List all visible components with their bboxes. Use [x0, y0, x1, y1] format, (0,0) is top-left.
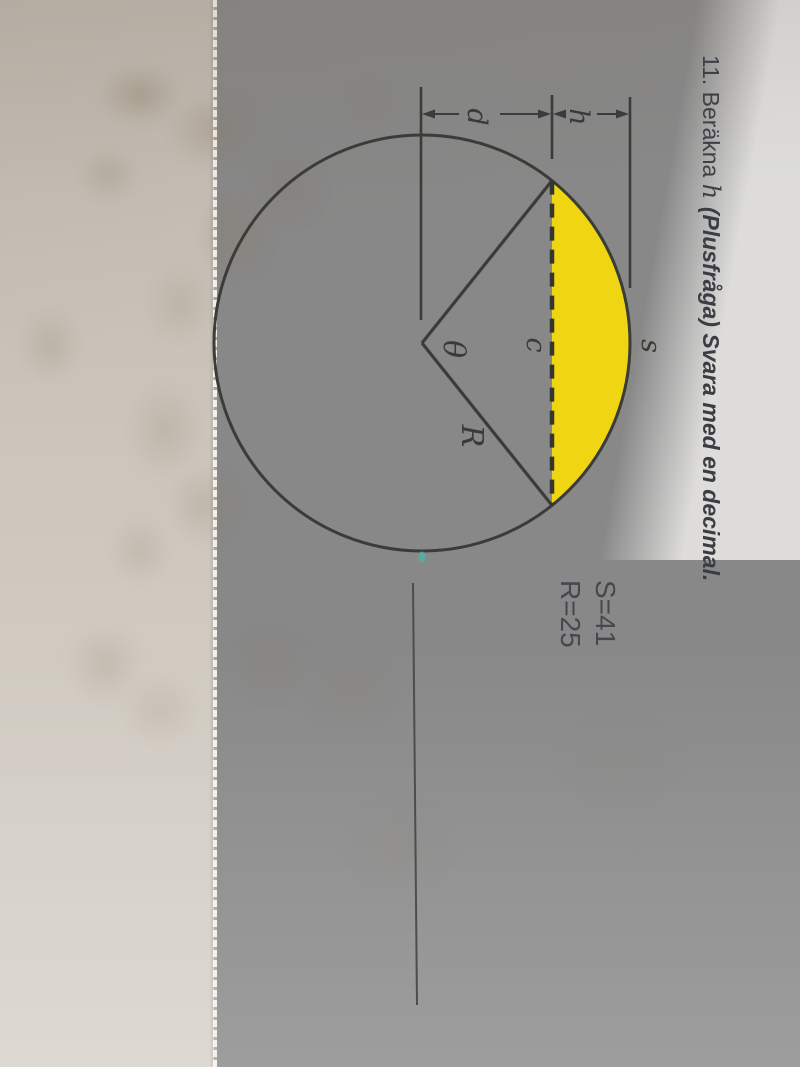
problem-instruction: (Plusfråga) Svara med en decimal. [698, 207, 724, 582]
segment-height-label: h [563, 108, 594, 125]
arc-length-label: s [635, 339, 666, 353]
central-angle-label: θ [436, 340, 471, 358]
problem-verb: Beräkna [698, 92, 724, 184]
radius-left-line [422, 181, 552, 343]
segment-fill [552, 181, 630, 506]
photo-of-worksheet: 11. Beräkna h (Plusfråga) Svara med en d… [0, 0, 800, 1067]
given-radius-value: R=25 [555, 580, 586, 648]
answer-line [413, 583, 417, 1005]
h-arrow-down [553, 110, 566, 119]
given-arc-value: S=41 [590, 580, 621, 646]
rotated-worksheet-content: 11. Beräkna h (Plusfråga) Svara med en d… [0, 0, 800, 1067]
h-arrow-up [616, 110, 629, 119]
problem-number: 11. [698, 55, 724, 92]
center-distance-label: d [461, 108, 492, 125]
d-arrow-up [538, 110, 551, 119]
radius-label: R [454, 424, 489, 448]
teal-pen-mark [419, 552, 426, 563]
problem-title: 11. Beräkna h (Plusfråga) Svara med en d… [697, 55, 725, 581]
d-arrow-down [422, 110, 435, 119]
problem-variable: h [697, 184, 725, 207]
chord-label: c [520, 337, 551, 352]
worksheet-diagram: 11. Beräkna h (Plusfråga) Svara med en d… [0, 0, 800, 1067]
